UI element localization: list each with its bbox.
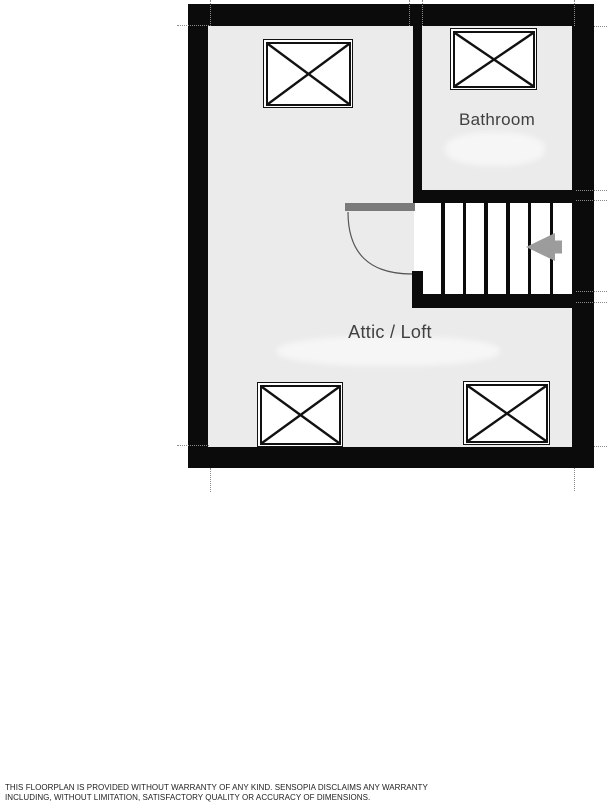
wall-left [188,4,208,468]
wall-stairs-bottom [412,294,594,308]
dimension-guide [576,200,607,201]
disclaimer-line-2: INCLUDING, WITHOUT LIMITATION, SATISFACT… [5,793,435,803]
dimension-guide [177,25,209,26]
skylight-window [263,39,353,108]
dimension-guide [576,302,607,303]
faded-fixture [445,132,545,166]
room-label-bathroom: Bathroom [422,110,572,130]
dimension-guide [574,0,575,26]
dimension-guide [594,26,607,27]
door-swing-arc [345,203,415,283]
dimension-guide [574,468,575,491]
disclaimer-line-1: THIS FLOORPLAN IS PROVIDED WITHOUT WARRA… [5,783,435,793]
room-label-attic: Attic / Loft [208,322,572,343]
wall-right [572,4,594,468]
dimension-guide [422,0,423,26]
floorplan-canvas: Bathroom Attic / Loft THIS FLOORPLAN IS … [0,0,608,808]
arrow-left-icon [524,231,564,263]
skylight-x-icon [266,42,351,106]
skylight-window [257,382,343,447]
wall-bottom [188,447,594,468]
dimension-guide [576,291,607,292]
stair-divider [463,203,467,294]
dimension-guide [576,190,607,191]
stair-divider [441,203,445,294]
disclaimer-text: THIS FLOORPLAN IS PROVIDED WITHOUT WARRA… [5,783,435,803]
stair-divider [484,203,488,294]
dimension-guide [409,0,410,26]
wall-bathroom-bottom [413,190,594,203]
dimension-guide [210,0,211,26]
wall-bathroom-divider [413,26,422,203]
wall-top [188,4,594,26]
skylight-window [450,28,537,90]
stair-divider [506,203,510,294]
dimension-guide [177,445,209,446]
skylight-window [463,381,550,445]
dimension-guide [210,468,211,492]
skylight-x-icon [466,384,548,443]
skylight-x-icon [260,385,341,445]
skylight-x-icon [453,31,535,88]
dimension-guide [594,446,607,447]
